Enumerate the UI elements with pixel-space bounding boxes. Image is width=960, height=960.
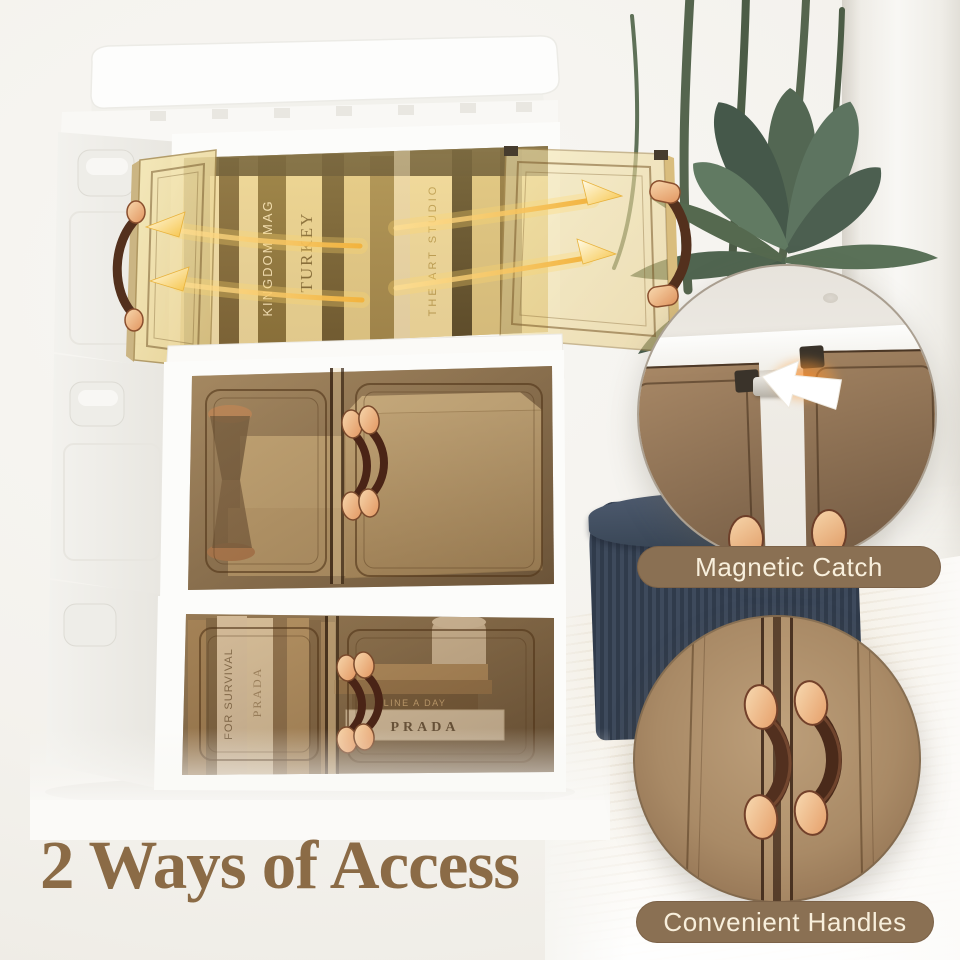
side-handle-grip	[86, 158, 128, 175]
top-bin-left-door-open	[117, 150, 216, 368]
top-bin: KINGDOM MAG TURKEY THE ART STUDIO	[54, 100, 687, 370]
product-marketing-image: KINGDOM MAG TURKEY THE ART STUDIO	[0, 0, 960, 960]
ceiling-light-dot	[823, 293, 838, 303]
amber-glass	[185, 360, 560, 595]
door-corner-bracket	[654, 150, 668, 160]
convenient-handles-label-text: Convenient Handles	[663, 907, 906, 938]
middle-bin	[50, 334, 566, 602]
convenient-handles-callout-circle	[633, 615, 921, 903]
middle-bin-window	[185, 360, 560, 595]
door-corner-bracket	[504, 146, 518, 156]
door-seam	[330, 368, 344, 584]
side-handle-grip	[78, 390, 118, 406]
bottom-bin: FOR SURVIVAL PRADA LINE A DAY PRADA	[30, 580, 610, 840]
magnetic-catch-label-text: Magnetic Catch	[695, 552, 883, 583]
magnetic-catch-callout-circle	[637, 264, 937, 564]
side-handle-cutout	[64, 604, 116, 646]
page-title: 2 Ways of Access	[40, 826, 519, 905]
handle-rivet	[127, 201, 145, 223]
magnetic-catch-label: Magnetic Catch	[637, 546, 941, 588]
handle-rivet	[125, 309, 143, 331]
handles-closeup	[635, 617, 919, 901]
convenient-handles-label: Convenient Handles	[636, 901, 934, 943]
